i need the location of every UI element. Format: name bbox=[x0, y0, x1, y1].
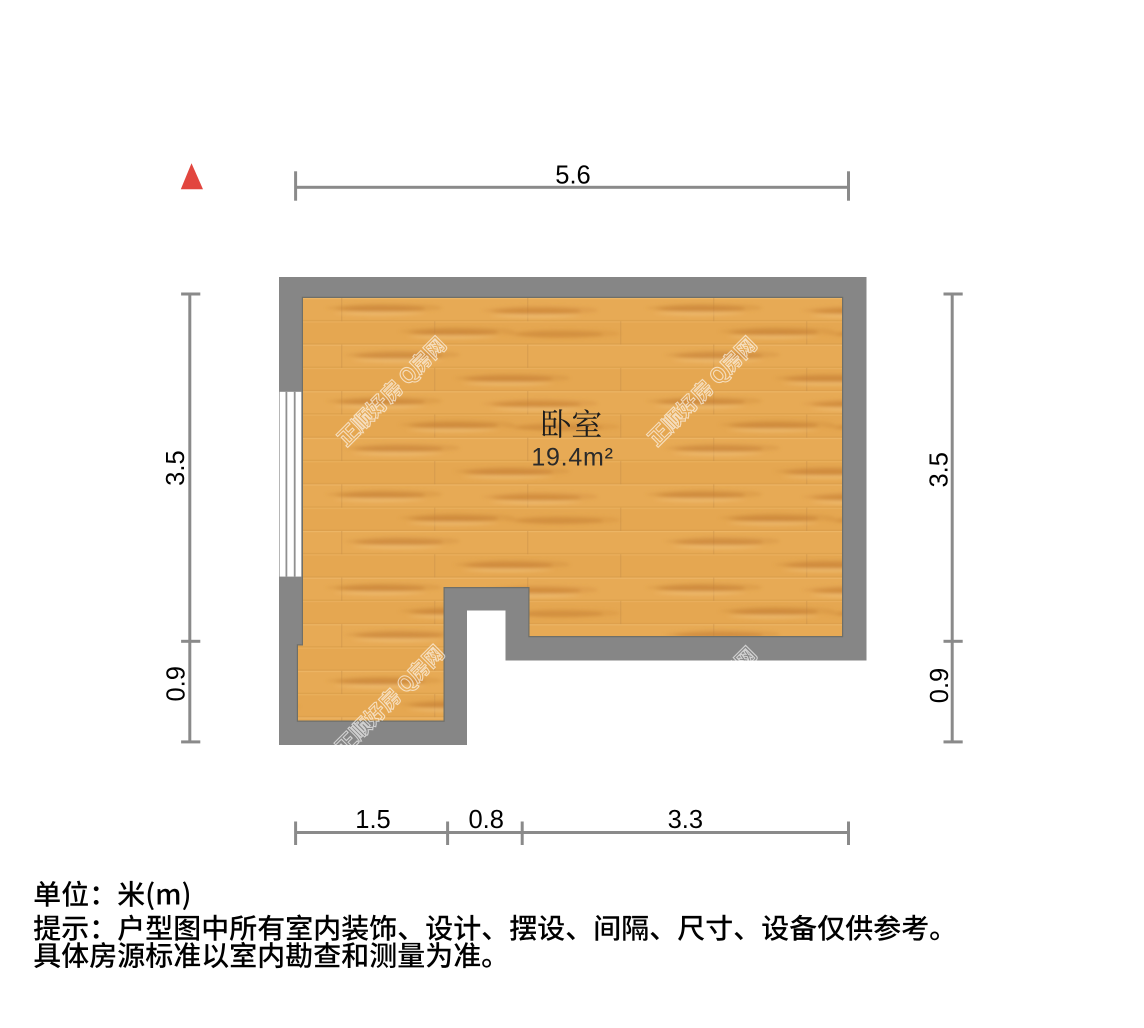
svg-text:3.3: 3.3 bbox=[668, 806, 703, 834]
svg-text:19.4m²: 19.4m² bbox=[531, 444, 613, 472]
svg-text:3.5: 3.5 bbox=[926, 452, 954, 487]
svg-text:1.5: 1.5 bbox=[355, 806, 390, 834]
svg-text:0.9: 0.9 bbox=[926, 668, 954, 703]
svg-text:5.6: 5.6 bbox=[555, 162, 590, 190]
svg-text:0.8: 0.8 bbox=[468, 806, 503, 834]
svg-text:3.5: 3.5 bbox=[162, 450, 190, 485]
svg-text:0.9: 0.9 bbox=[162, 666, 190, 701]
